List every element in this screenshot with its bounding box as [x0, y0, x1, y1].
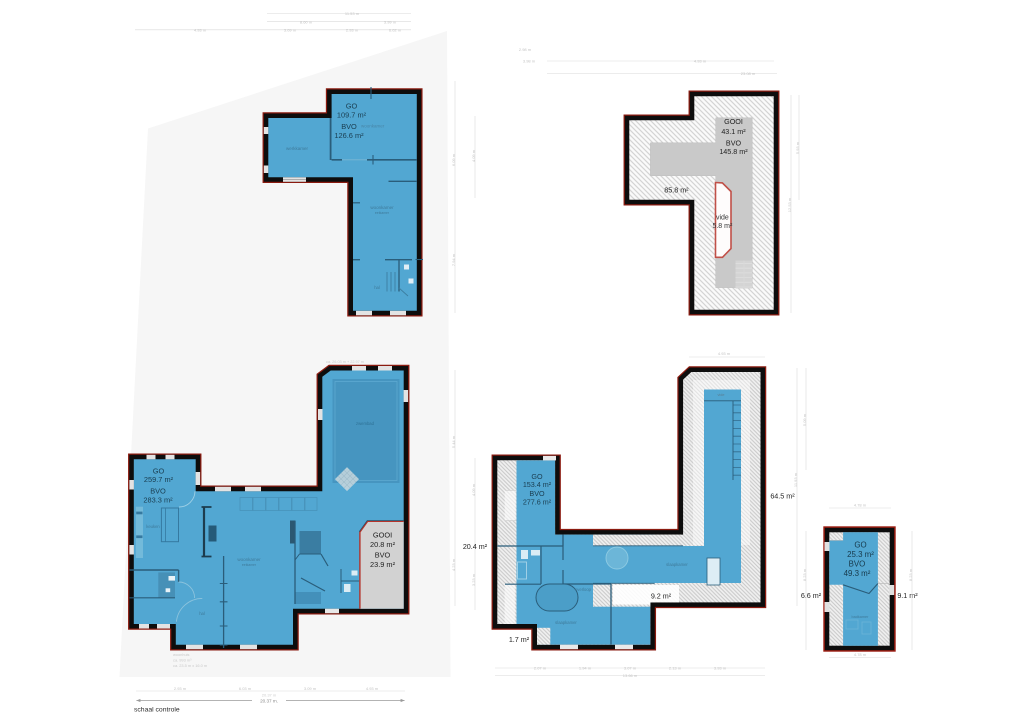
svg-text:3.23 m: 3.23 m — [471, 573, 476, 586]
svg-text:3.07 m: 3.07 m — [624, 666, 637, 671]
svg-text:64.5 m²: 64.5 m² — [770, 492, 795, 501]
svg-text:20.4 m²: 20.4 m² — [463, 542, 488, 551]
svg-text:3.09 m: 3.09 m — [284, 28, 297, 33]
svg-text:3.98 m: 3.98 m — [523, 59, 536, 64]
svg-text:eetkamer: eetkamer — [242, 563, 257, 567]
svg-text:9.2 m²: 9.2 m² — [651, 592, 672, 601]
svg-text:20.8 m²: 20.8 m² — [370, 540, 396, 549]
svg-text:BVO: BVO — [341, 122, 357, 131]
svg-text:overloop: overloop — [575, 587, 592, 592]
svg-text:keuken: keuken — [146, 524, 160, 529]
svg-text:woonkamer: woonkamer — [370, 205, 394, 210]
svg-text:4.93 m: 4.93 m — [366, 686, 379, 691]
svg-text:4.93 m: 4.93 m — [694, 59, 707, 64]
svg-text:3.99 m: 3.99 m — [384, 19, 397, 24]
svg-text:259.7 m²: 259.7 m² — [144, 475, 174, 484]
svg-text:6.02 m: 6.02 m — [389, 28, 402, 33]
svg-text:6.09 m: 6.09 m — [451, 153, 456, 166]
svg-text:2.13 m: 2.13 m — [669, 666, 682, 671]
svg-text:2.98 m: 2.98 m — [519, 47, 532, 52]
svg-text:BVO: BVO — [849, 560, 866, 569]
svg-text:slaapkamer: slaapkamer — [555, 620, 577, 625]
svg-text:2.93 m: 2.93 m — [174, 686, 187, 691]
svg-text:85.8 m²: 85.8 m² — [664, 185, 689, 194]
svg-text:woonkamer: woonkamer — [237, 557, 261, 562]
svg-text:schaal controle: schaal controle — [134, 707, 180, 714]
svg-text:hal: hal — [199, 611, 205, 616]
svg-text:ca. 993 m³: ca. 993 m³ — [173, 658, 192, 663]
svg-text:GO: GO — [346, 102, 358, 111]
svg-text:1.94 m: 1.94 m — [579, 666, 592, 671]
svg-text:GOOI: GOOI — [724, 117, 743, 126]
svg-text:woonhuis: woonhuis — [173, 652, 189, 657]
svg-text:woonkamer: woonkamer — [361, 124, 385, 129]
svg-text:6.03 m: 6.03 m — [239, 686, 252, 691]
svg-text:11.93 m: 11.93 m — [793, 472, 798, 487]
svg-text:8.23 m: 8.23 m — [908, 568, 913, 581]
svg-text:2.07 m: 2.07 m — [534, 666, 547, 671]
svg-text:109.7 m²: 109.7 m² — [337, 111, 367, 120]
svg-text:126.6 m²: 126.6 m² — [334, 131, 364, 140]
svg-text:4.09 m: 4.09 m — [471, 149, 476, 162]
svg-text:6.6 m²: 6.6 m² — [801, 591, 822, 600]
svg-text:13.66 m: 13.66 m — [623, 673, 638, 678]
svg-text:4.93 m: 4.93 m — [718, 351, 731, 356]
svg-text:20.37 m: 20.37 m — [262, 693, 277, 698]
svg-text:GO: GO — [854, 541, 866, 550]
svg-text:277.6 m²: 277.6 m² — [523, 497, 552, 506]
svg-text:badkamer: badkamer — [852, 615, 870, 619]
svg-text:zwembad: zwembad — [356, 421, 375, 426]
svg-text:BVO: BVO — [726, 139, 742, 148]
svg-text:werkkamer: werkkamer — [286, 146, 309, 151]
svg-text:11.53 m: 11.53 m — [345, 11, 360, 16]
svg-text:3.09 m: 3.09 m — [304, 686, 317, 691]
svg-text:23.08 m: 23.08 m — [741, 71, 756, 76]
svg-text:7.94 m: 7.94 m — [451, 253, 456, 266]
svg-text:vide: vide — [716, 215, 729, 222]
svg-text:9.1 m²: 9.1 m² — [897, 591, 918, 600]
svg-text:20.37 m.: 20.37 m. — [260, 699, 278, 704]
svg-text:4.78 m: 4.78 m — [854, 652, 867, 657]
svg-text:ca. 26.03 m + 22.97 m: ca. 26.03 m + 22.97 m — [326, 360, 364, 364]
svg-text:4.93 m: 4.93 m — [194, 28, 207, 33]
svg-text:BVO: BVO — [150, 486, 166, 495]
svg-text:43.1 m²: 43.1 m² — [721, 127, 746, 136]
svg-text:5.93 m: 5.93 m — [795, 141, 800, 154]
svg-text:GOOI: GOOI — [373, 531, 392, 540]
svg-text:4.78 m: 4.78 m — [854, 503, 867, 508]
svg-text:3.93 m: 3.93 m — [714, 666, 727, 671]
svg-text:23.9 m²: 23.9 m² — [370, 560, 396, 569]
svg-text:49.3 m²: 49.3 m² — [844, 569, 871, 578]
svg-text:145.8 m²: 145.8 m² — [719, 147, 748, 156]
svg-text:8.60 m: 8.60 m — [300, 19, 313, 24]
svg-text:eetkamer: eetkamer — [375, 211, 390, 215]
svg-text:slaapkamer: slaapkamer — [666, 562, 688, 567]
svg-text:25.3 m²: 25.3 m² — [847, 550, 874, 559]
svg-text:153.4 m²: 153.4 m² — [523, 480, 552, 489]
svg-text:12.53 m: 12.53 m — [787, 197, 792, 212]
svg-text:283.3 m²: 283.3 m² — [143, 495, 173, 504]
svg-text:BVO: BVO — [375, 551, 391, 560]
svg-text:ca. 23.5 m x 16.0 m: ca. 23.5 m x 16.0 m — [173, 663, 207, 668]
svg-text:5.8 m²: 5.8 m² — [712, 223, 733, 230]
svg-text:4.23 m: 4.23 m — [451, 558, 456, 571]
svg-text:8.23 m: 8.23 m — [802, 568, 807, 581]
svg-text:hal: hal — [374, 285, 380, 290]
svg-text:5.09 m: 5.09 m — [802, 413, 807, 426]
svg-text:1.7 m²: 1.7 m² — [509, 635, 530, 644]
svg-text:GO: GO — [153, 466, 165, 475]
svg-text:4.09 m: 4.09 m — [471, 483, 476, 496]
svg-text:vide: vide — [718, 393, 725, 397]
svg-text:2.93 m: 2.93 m — [346, 28, 359, 33]
svg-text:5.44 m: 5.44 m — [451, 435, 456, 448]
